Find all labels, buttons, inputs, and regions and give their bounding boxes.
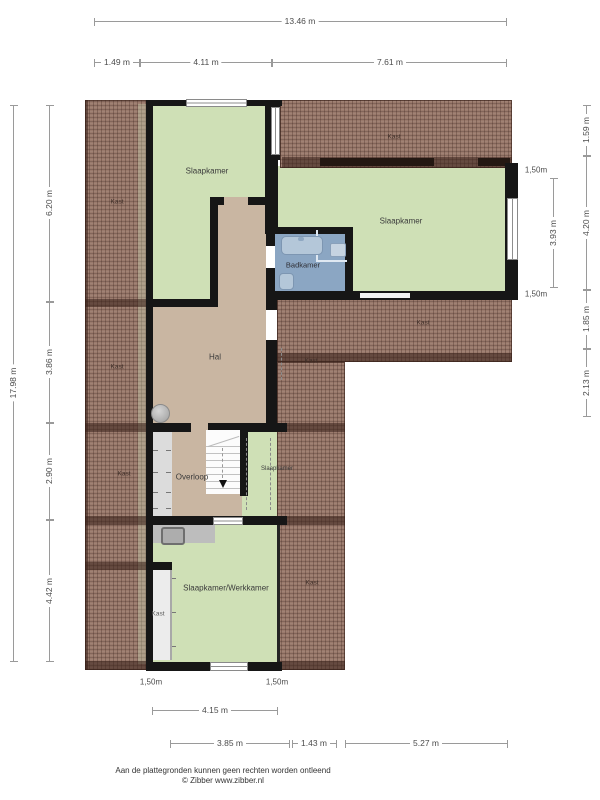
footer: Aan de plattegronden kunnen geen rechten… (115, 766, 330, 786)
dim-label-bottom-seg1: 3.85 m (214, 738, 246, 748)
wall-sk1-inner (210, 197, 218, 307)
wall-bad-top (266, 227, 352, 234)
stairs-walkline (222, 448, 223, 478)
dim-label-clearance-2: 1,50m (266, 678, 288, 687)
wall-sk1-bad (265, 158, 278, 234)
label-kast-rightstrip-1: Kast (304, 358, 317, 365)
wall-sk1-bottom (146, 299, 218, 307)
window-bottom (210, 662, 248, 671)
roof-left-dark-edge (85, 100, 88, 670)
floorplan-page: 13.46 m 1.49 m 4.11 m 7.61 m 17.98 m 6.2… (0, 0, 600, 800)
dim-label-left-seg4: 4.42 m (44, 575, 54, 607)
label-slaapkamer-small: Slaapkamer (261, 466, 293, 472)
window-sk2-bottom (360, 293, 410, 298)
dim-label-right-inner-top: 1,50m (525, 166, 547, 175)
label-kast-left-3: Kast (117, 471, 130, 478)
roof-right-band-2 (277, 516, 345, 525)
dim-label-top-seg2: 4.11 m (190, 57, 221, 67)
kneewall-sk2-1 (320, 158, 434, 166)
shelf-tick (166, 492, 171, 493)
shelf-tick (166, 472, 171, 473)
label-kast-bottomleft: Kast (151, 611, 164, 618)
dim-label-right-inner-mid: 3.93 m (548, 217, 558, 249)
room-hal-main (153, 307, 268, 425)
roof-left-band-3 (85, 516, 146, 525)
label-kast-left-1: Kast (110, 199, 123, 206)
shelf-tick (153, 450, 158, 451)
window-overloop-bottom (213, 517, 243, 525)
bath-partition-h (316, 260, 347, 262)
shelf-tick (166, 450, 171, 451)
slope-line-sk3-left (246, 438, 247, 510)
ceiling-tick (172, 612, 176, 613)
wall-bad-right (345, 227, 353, 298)
footer-credit: © Zibber www.zibber.nl (115, 776, 330, 786)
sink (161, 527, 185, 545)
shelf-tick (166, 508, 171, 509)
slope-line-kast-right (281, 348, 282, 380)
label-kast-rightstrip-2: Kast (305, 580, 318, 587)
ceiling-tick (172, 646, 176, 647)
label-badkamer: Badkamer (286, 261, 320, 270)
dim-label-right-inner-bottom: 1,50m (525, 290, 547, 299)
room-hal-upper (215, 197, 268, 309)
door-opening-hal-top (224, 197, 248, 205)
wall-kast-top (146, 562, 172, 570)
label-overloop: Overloop (176, 473, 208, 482)
roof-left-band-2 (85, 423, 146, 432)
dim-label-right-seg1: 1.59 m (581, 114, 591, 146)
roof-right-band-bottom (277, 661, 345, 670)
dim-label-right-seg4: 2.13 m (581, 367, 591, 399)
stairs-down-arrow (219, 480, 227, 488)
dim-label-total-width: 13.46 m (282, 16, 319, 26)
dim-label-right-seg3: 1.85 m (581, 303, 591, 335)
hal-round-fixture (151, 404, 170, 423)
label-werkkamer: Slaapkamer/Werkkamer (183, 584, 269, 593)
label-kast-left-2: Kast (110, 364, 123, 371)
label-slaapkamer-topleft: Slaapkamer (186, 167, 229, 176)
label-hal: Hal (209, 353, 221, 362)
door-sk1 (271, 107, 280, 155)
dim-label-bottom-upper: 4.15 m (199, 705, 231, 715)
dim-label-left-total: 17.98 m (8, 365, 18, 402)
roof-left-band-1 (85, 299, 146, 307)
dim-label-right-seg2: 4.20 m (581, 207, 591, 239)
footer-disclaimer: Aan de plattegronden kunnen geen rechten… (115, 766, 330, 776)
wall-werkkamer-right (277, 525, 280, 662)
toilet (330, 243, 346, 257)
closet-shelf-strip (153, 432, 172, 518)
slope-line-sk3-right (270, 438, 271, 510)
dim-label-clearance-1: 1,50m (140, 678, 162, 687)
label-kast-topright: Kast (387, 134, 400, 141)
shelf-tick (153, 508, 158, 509)
dim-label-top-seg1: 1.49 m (101, 57, 133, 67)
label-kast-midright: Kast (416, 320, 429, 327)
window-top (186, 99, 247, 107)
roof-right-band-1 (277, 423, 345, 432)
dim-label-bottom-seg2: 1.43 m (298, 738, 330, 748)
wall-left (146, 100, 153, 662)
dim-label-bottom-seg3: 5.27 m (410, 738, 442, 748)
dim-label-left-seg1: 6.20 m (44, 187, 54, 219)
roof-left-band-4 (85, 562, 146, 570)
shelf-tick (153, 472, 158, 473)
shelf-tick (153, 492, 158, 493)
door-opening-badkamer (266, 246, 275, 268)
ceiling-tick (172, 578, 176, 579)
bathtub-faucet (298, 237, 304, 241)
dim-label-top-seg3: 7.61 m (374, 57, 406, 67)
dim-label-left-seg3: 2.90 m (44, 455, 54, 487)
dim-label-left-seg2: 3.86 m (44, 346, 54, 378)
roof-left-band-bottom (85, 661, 147, 670)
washbasin (279, 273, 294, 290)
door-opening-hal-right (266, 310, 277, 340)
label-slaapkamer-topright: Slaapkamer (380, 217, 423, 226)
window-sk2-right (507, 198, 518, 260)
